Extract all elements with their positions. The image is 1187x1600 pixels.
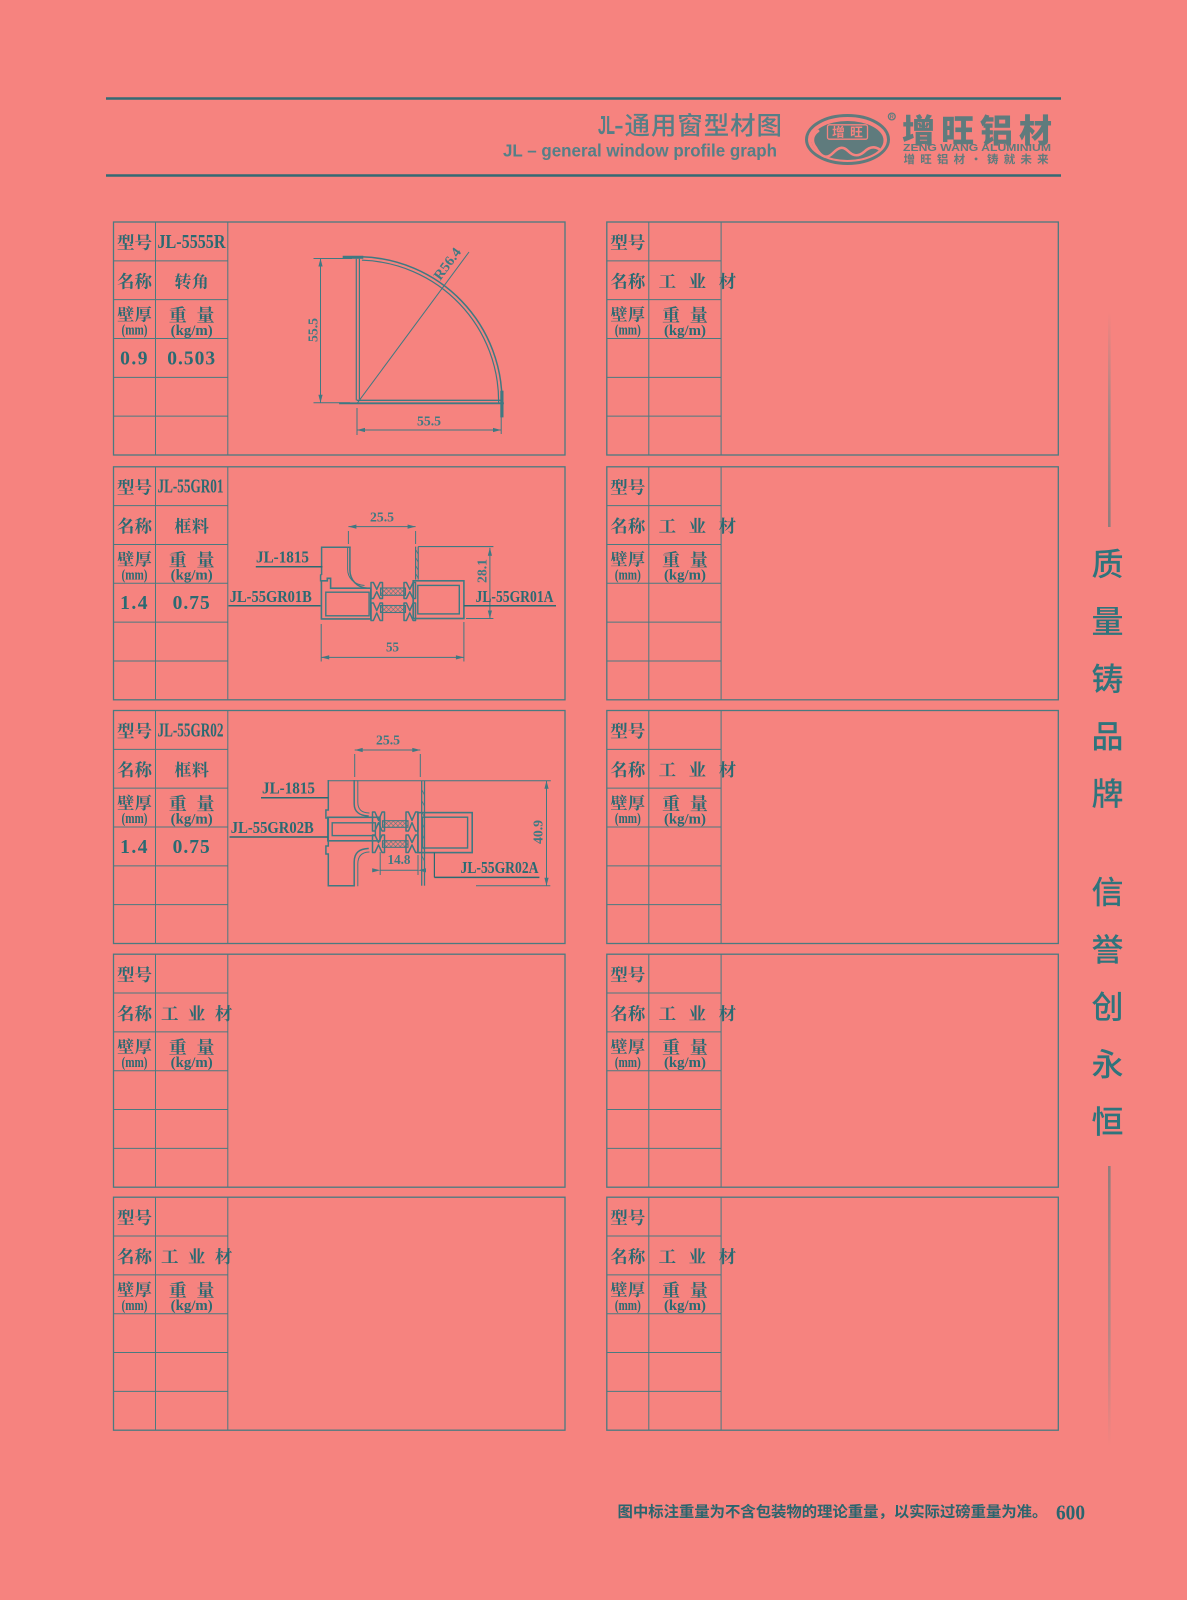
svg-text:55.5: 55.5 xyxy=(307,318,322,342)
svg-text:JL-5555R: JL-5555R xyxy=(158,232,227,253)
svg-text:(kg/m): (kg/m) xyxy=(171,323,213,339)
svg-text:(mm): (mm) xyxy=(122,567,148,583)
svg-text:(mm): (mm) xyxy=(615,1055,641,1071)
svg-text:(mm): (mm) xyxy=(615,811,641,827)
svg-text:40.9: 40.9 xyxy=(532,820,547,844)
svg-text:R: R xyxy=(890,115,894,121)
svg-text:25.5: 25.5 xyxy=(376,734,400,749)
svg-text:(mm): (mm) xyxy=(615,1298,641,1314)
svg-text:(kg/m): (kg/m) xyxy=(171,811,213,827)
svg-text:(kg/m): (kg/m) xyxy=(664,811,706,827)
svg-text:28.1: 28.1 xyxy=(476,559,491,583)
svg-text:55.5: 55.5 xyxy=(417,415,441,430)
svg-text:(mm): (mm) xyxy=(122,1298,148,1314)
svg-text:(kg/m): (kg/m) xyxy=(171,568,213,584)
svg-text:(kg/m): (kg/m) xyxy=(171,1055,213,1071)
svg-text:600: 600 xyxy=(1056,1501,1085,1525)
svg-text:1.4: 1.4 xyxy=(120,593,149,614)
svg-text:(kg/m): (kg/m) xyxy=(664,568,706,584)
svg-text:(kg/m): (kg/m) xyxy=(664,1055,706,1071)
svg-text:JL-55GR01B: JL-55GR01B xyxy=(230,587,312,606)
svg-text:JL–: JL– xyxy=(598,110,623,140)
svg-text:JL-1815: JL-1815 xyxy=(256,548,309,567)
svg-text:JL-55GR02: JL-55GR02 xyxy=(158,720,224,741)
svg-text:(mm): (mm) xyxy=(615,567,641,583)
svg-text:25.5: 25.5 xyxy=(370,511,394,526)
svg-text:JL-55GR02A: JL-55GR02A xyxy=(461,858,539,877)
svg-text:0.75: 0.75 xyxy=(173,593,211,614)
svg-text:JL – general window profile gr: JL – general window profile graph xyxy=(503,141,777,161)
svg-text:(mm): (mm) xyxy=(615,323,641,339)
svg-text:(kg/m): (kg/m) xyxy=(171,1298,213,1314)
svg-text:0.9: 0.9 xyxy=(120,348,149,369)
svg-text:JL-55GR01A: JL-55GR01A xyxy=(476,587,554,606)
svg-text:(mm): (mm) xyxy=(122,1055,148,1071)
svg-text:(mm): (mm) xyxy=(122,323,148,339)
svg-text:14.8: 14.8 xyxy=(388,852,411,867)
svg-text:(kg/m): (kg/m) xyxy=(664,323,706,339)
svg-text:1.4: 1.4 xyxy=(120,837,149,858)
svg-text:JL-1815: JL-1815 xyxy=(262,779,315,798)
svg-text:0.75: 0.75 xyxy=(173,837,211,858)
svg-text:(mm): (mm) xyxy=(122,811,148,827)
svg-text:JL-55GR02B: JL-55GR02B xyxy=(231,818,314,837)
svg-text:0.503: 0.503 xyxy=(167,348,216,369)
svg-text:ZENG WANG ALUMINIUM: ZENG WANG ALUMINIUM xyxy=(903,143,1051,154)
svg-text:JL-55GR01: JL-55GR01 xyxy=(158,477,224,498)
svg-text:(kg/m): (kg/m) xyxy=(664,1298,706,1314)
svg-text:55: 55 xyxy=(386,641,399,656)
